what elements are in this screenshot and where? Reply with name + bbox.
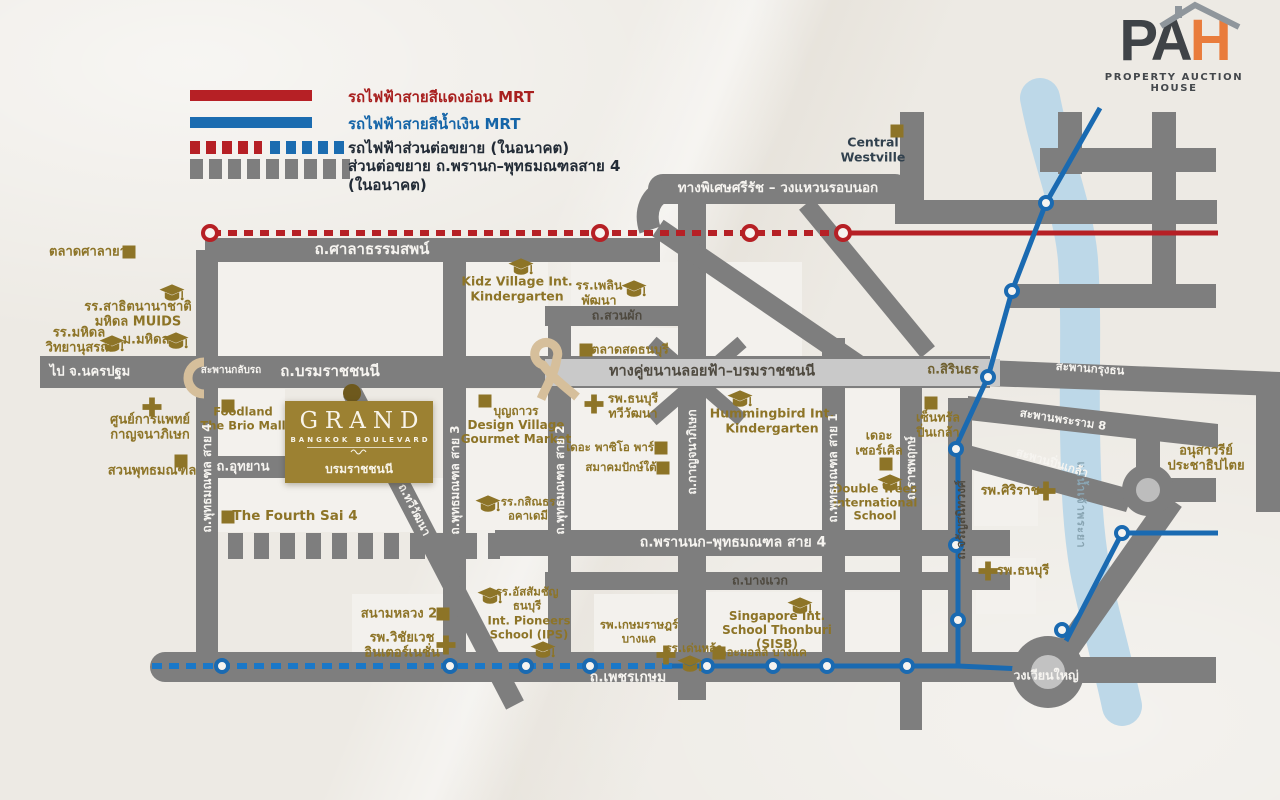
label-road-prannok: ถ.พรานนก–พุทธมณฑล สาย 4 bbox=[640, 535, 827, 552]
place-icon bbox=[891, 125, 904, 138]
label-road-suanphak: ถ.สวนผัก bbox=[592, 309, 642, 324]
legend-blue-line-swatch bbox=[190, 117, 312, 128]
roof-icon bbox=[1159, 0, 1243, 30]
place-icon bbox=[479, 395, 492, 408]
mrt-station-blue bbox=[216, 660, 228, 672]
legend-road-extension-swatch bbox=[190, 159, 350, 179]
mrt-station-blue bbox=[1116, 527, 1128, 539]
legend-red-line-label: รถไฟฟ้าสายสีแดงอ่อน MRT bbox=[348, 88, 534, 107]
project-location: บรมราชชนนี bbox=[285, 460, 433, 479]
project-tagline: BANGKOK BOULEVARD bbox=[285, 436, 433, 444]
school-icon bbox=[678, 655, 703, 673]
mrt-station-blue bbox=[701, 660, 713, 672]
label-elevated-parallel-road: ทางคู่ขนานลอยฟ้า–บรมราชชนนี bbox=[609, 363, 815, 380]
label-road-charansanitwong: ถ.จรัญสนิทวงศ์ bbox=[954, 480, 968, 559]
school-icon bbox=[509, 258, 534, 276]
label-kidz-village: Kidz Village Int. Kindergarten bbox=[461, 274, 572, 304]
legend-blue-line-label: รถไฟฟ้าสายสีน้ำเงิน MRT bbox=[348, 115, 521, 134]
legend-future-rail-label: รถไฟฟ้าส่วนต่อขยาย (ในอนาคต) bbox=[348, 139, 569, 158]
label-mahidol-university: ม.มหิดล bbox=[122, 332, 169, 347]
label-siriraj-hospital: รพ.ศิริราช bbox=[981, 483, 1040, 498]
hospital-icon bbox=[143, 398, 162, 417]
label-the-paseo-park: เดอะ พาซิโอ พาร์ค bbox=[566, 441, 661, 455]
mrt-station-blue bbox=[767, 660, 779, 672]
school-icon bbox=[531, 641, 556, 659]
place-icon bbox=[175, 455, 188, 468]
label-road-salathammasop: ถ.ศาลาธรรมสพน์ bbox=[315, 241, 430, 259]
pah-logo-word: PAH bbox=[1119, 12, 1228, 70]
legend-red-line-swatch bbox=[190, 90, 312, 101]
place-icon bbox=[655, 442, 668, 455]
label-southern-association: สมาคมปักษ์ใต้ bbox=[585, 461, 656, 475]
label-road-phetkasem: ถ.เพชรเกษม bbox=[590, 670, 667, 687]
school-icon bbox=[622, 280, 647, 298]
label-thonburi-thawiwatthana-hospital: รพ.ธนบุรี ทวีวัฒนา bbox=[608, 391, 659, 421]
label-road-borommaratchachonnani: ถ.บรมราชชนนี bbox=[280, 363, 380, 381]
label-road-ratchaphruek: ถ.ราชพฤกษ์ bbox=[904, 436, 918, 500]
label-vichaivej-hospital: รพ.วิชัยเวช อินเตอร์เนชั่น bbox=[364, 631, 439, 662]
project-badge: GRAND BANGKOK BOULEVARD บรมราชชนนี bbox=[285, 401, 433, 483]
mrt-station-blue bbox=[952, 614, 964, 626]
democracy-roundabout bbox=[1122, 464, 1174, 516]
place-icon bbox=[222, 400, 235, 413]
label-road-phutthamonthon-sai2: ถ.พุทธมณฑล สาย 2 bbox=[553, 425, 567, 534]
mrt-station-blue bbox=[520, 660, 532, 672]
label-road-sirindhorn: ถ.สิรินธร bbox=[927, 362, 979, 377]
label-uturn-bridge: สะพานกลับรถ bbox=[201, 365, 261, 377]
pah-logo-subtitle: PROPERTY AUCTION HOUSE bbox=[1084, 72, 1264, 94]
label-talad-sod-thonburi: ตลาดสดธนบุรี bbox=[591, 343, 668, 358]
label-wongwianyai: วงเวียนใหญ่ bbox=[1013, 669, 1078, 684]
school-icon bbox=[728, 390, 753, 408]
mrt-station-blue bbox=[982, 371, 994, 383]
pah-logo: PAH PROPERTY AUCTION HOUSE bbox=[1084, 12, 1264, 94]
mrt-station-blue bbox=[821, 660, 833, 672]
place-icon bbox=[713, 647, 726, 660]
place-icon bbox=[580, 344, 593, 357]
school-icon bbox=[476, 495, 501, 513]
legend-red-dash bbox=[190, 141, 262, 154]
mrt-station-blue bbox=[950, 443, 962, 455]
label-road-phutthamonthon-sai4: ถ.พุทธมณฑล สาย 4 bbox=[200, 423, 214, 532]
label-central-westville: Central Westville bbox=[841, 135, 906, 165]
label-road-utthayan: ถ.อุทยาน bbox=[217, 459, 270, 474]
label-the-circle: เดอะ เซอร์เคิล bbox=[855, 428, 902, 458]
label-kasintorn-academy: รร.กสิณธร อคาเดมี bbox=[501, 495, 556, 522]
label-hummingbird-kindergarten: Hummingbird Int. Kindergarten bbox=[710, 406, 835, 436]
school-icon bbox=[878, 474, 903, 492]
mrt-station-blue bbox=[1056, 624, 1068, 636]
label-kasemrad-bangkae: รพ.เกษมราษฎร์ บางแค bbox=[600, 618, 678, 645]
legend-future-rail-swatch bbox=[190, 141, 346, 154]
project-divider bbox=[307, 447, 411, 455]
label-sanamluang2: สนามหลวง 2 bbox=[361, 606, 437, 621]
label-road-bangwaek: ถ.บางแวก bbox=[732, 574, 788, 589]
place-icon bbox=[437, 608, 450, 621]
label-the-fourth-sai4: The Fourth Sai 4 bbox=[232, 509, 357, 525]
label-central-pinklao: เซ็นทรัล ปิ่นเกล้า bbox=[916, 410, 960, 440]
place-icon bbox=[925, 397, 938, 410]
school-icon bbox=[160, 284, 185, 302]
mrt-station-blue bbox=[1040, 197, 1052, 209]
place-icon bbox=[222, 511, 235, 524]
school-icon bbox=[788, 597, 813, 615]
mrt-station-red bbox=[593, 226, 607, 240]
place-icon bbox=[657, 462, 670, 475]
label-kanchanaphisek-medical-center: ศูนย์การแพทย์ กาญจนาภิเษก bbox=[110, 413, 190, 444]
mrt-station-blue bbox=[444, 660, 456, 672]
label-srirat-expressway: ทางพิเศษศรีรัช – วงแหวนรอบนอก bbox=[678, 181, 878, 197]
mrt-station-red bbox=[743, 226, 757, 240]
place-icon bbox=[123, 246, 136, 259]
project-name: GRAND bbox=[285, 410, 433, 433]
school-icon bbox=[164, 332, 189, 350]
hospital-icon bbox=[979, 562, 998, 581]
label-democracy-monument: อนุสาวรีย์ ประชาธิปไตย bbox=[1167, 444, 1244, 475]
place-icon bbox=[880, 458, 893, 471]
hospital-icon bbox=[437, 636, 456, 655]
project-pin-head bbox=[344, 385, 361, 402]
mrt-station-red bbox=[836, 226, 850, 240]
label-the-mall-bangkae: เดอะมอลล์ บางแค bbox=[715, 646, 807, 660]
label-road-phutthamonthon-sai3: ถ.พุทธมณฑล สาย 3 bbox=[448, 425, 462, 534]
label-road-kanchanaphisek: ถ.กาญจนาภิเษก bbox=[685, 409, 699, 494]
label-to-nakhonpathom: ไป จ.นครปฐม bbox=[50, 364, 130, 379]
location-map: ตลาดศาลายารร.สาธิตนานาชาติ มหิดล MUIDSรร… bbox=[0, 0, 1280, 800]
legend-blue-dash bbox=[270, 141, 346, 154]
label-int-pioneers-school: Int. Pioneers School (IPS) bbox=[488, 614, 571, 641]
label-plearnpattana-school: รร.เพลิน พัฒนา bbox=[576, 278, 623, 308]
legend-road-extension-label: ส่วนต่อขยาย ถ.พรานก–พุทธมณฑลสาย 4 (ในอนา… bbox=[348, 157, 620, 195]
hospital-icon bbox=[657, 646, 676, 665]
label-talad-salaya: ตลาดศาลายา bbox=[49, 244, 127, 259]
mrt-station-red bbox=[203, 226, 217, 240]
label-road-phutthamonthon-sai1: ถ.พุทธมณฑล สาย 1 bbox=[826, 413, 840, 522]
hospital-icon bbox=[585, 395, 604, 414]
label-assumption-thonburi: รร.อัสสัมชัญ ธนบุรี bbox=[496, 585, 559, 612]
mrt-station-blue bbox=[901, 660, 913, 672]
hospital-icon bbox=[1037, 482, 1056, 501]
school-icon bbox=[100, 335, 125, 353]
school-icon bbox=[478, 587, 503, 605]
mrt-station-blue bbox=[1006, 285, 1018, 297]
label-thonburi-hospital: รพ.ธนบุรี bbox=[997, 563, 1050, 578]
